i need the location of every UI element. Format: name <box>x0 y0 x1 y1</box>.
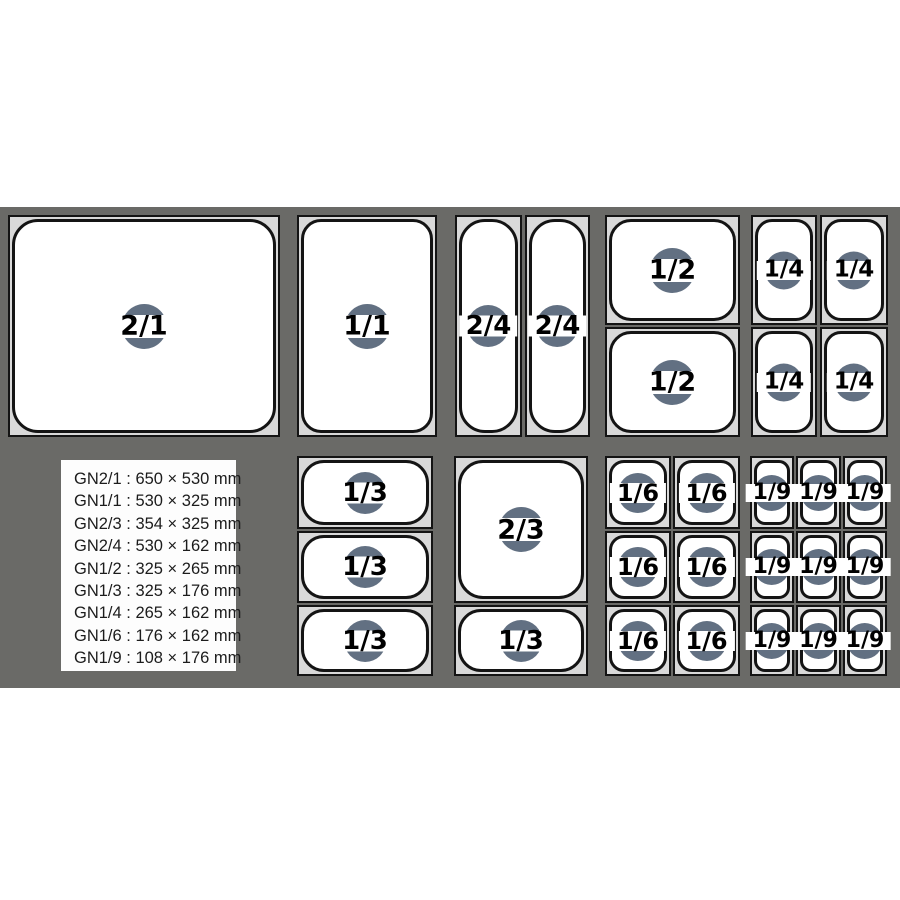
pan-gn21: 2/1 <box>12 219 276 433</box>
size-badge: 1/6 <box>685 481 727 505</box>
pan-cell-gn19-8: 1/9 <box>796 605 841 676</box>
size-badge: 2/1 <box>120 313 167 340</box>
pan-cell-gn19-9: 1/9 <box>843 605 887 676</box>
size-badge: 1/6 <box>617 481 659 505</box>
size-badge: 1/6 <box>685 629 727 653</box>
size-badge: 1/9 <box>799 556 838 578</box>
size-badge: 1/2 <box>649 369 696 396</box>
pan-size-label: 1/9 <box>753 482 792 504</box>
legend-item: GN2/3 : 354 × 325 mm <box>74 513 236 535</box>
pan-gn19-2: 1/9 <box>800 460 837 525</box>
legend-panel: GN2/1 : 650 × 530 mm GN1/1 : 530 × 325 m… <box>61 460 236 671</box>
size-badge: 1/4 <box>764 371 804 394</box>
pan-gn13-3: 1/3 <box>301 609 429 672</box>
pan-gn16-6: 1/6 <box>677 609 736 672</box>
pan-size-label: 1/9 <box>799 482 838 504</box>
pan-size-label: 2/1 <box>120 313 167 340</box>
pan-cell-gn16-4: 1/6 <box>673 531 740 603</box>
legend-item: GN1/6 : 176 × 162 mm <box>74 625 236 647</box>
pan-size-label: 1/3 <box>498 628 544 654</box>
pan-size-label: 1/4 <box>764 259 804 282</box>
pan-size-label: 2/3 <box>497 516 544 543</box>
legend-item: GN1/3 : 325 × 176 mm <box>74 580 236 602</box>
size-badge: 1/9 <box>753 556 792 578</box>
pan-cell-gn23-13: 1/3 <box>454 605 588 676</box>
pan-gn13-2: 1/3 <box>301 535 429 599</box>
pan-gn19-4: 1/9 <box>754 535 790 599</box>
pan-size-label: 1/9 <box>799 630 838 652</box>
pan-gn12-2: 1/2 <box>609 331 736 433</box>
size-badge: 1/2 <box>649 257 696 284</box>
legend-item: GN1/1 : 530 × 325 mm <box>74 490 236 512</box>
size-badge: 1/9 <box>846 630 885 652</box>
pan-gn24-2: 2/4 <box>529 219 586 433</box>
pan-gn19-3: 1/9 <box>847 460 883 525</box>
pan-size-label: 1/6 <box>685 629 727 653</box>
pan-size-label: 2/4 <box>466 313 512 339</box>
size-badge: 1/9 <box>799 482 838 504</box>
size-badge: 1/3 <box>498 628 544 654</box>
size-badge: 1/6 <box>617 629 659 653</box>
pan-gn16-2: 1/6 <box>677 460 736 525</box>
size-badge: 1/4 <box>834 259 874 282</box>
legend-item: GN1/2 : 325 × 265 mm <box>74 558 236 580</box>
pan-gn19-7: 1/9 <box>754 609 790 672</box>
legend-item: GN1/9 : 108 × 176 mm <box>74 647 236 669</box>
pan-cell-gn14-1: 1/4 <box>751 215 817 325</box>
size-badge: 1/9 <box>753 482 792 504</box>
pan-cell-gn11: 1/1 <box>297 215 437 437</box>
pan-gn11: 1/1 <box>301 219 433 433</box>
pan-cell-gn13-2: 1/3 <box>297 531 433 603</box>
pan-cell-gn24-2: 2/4 <box>525 215 590 437</box>
pan-cell-gn14-3: 1/4 <box>751 327 817 437</box>
size-badge: 2/4 <box>535 313 581 339</box>
pan-size-label: 1/6 <box>617 481 659 505</box>
pan-size-label: 1/2 <box>649 369 696 396</box>
pan-size-label: 1/3 <box>342 554 388 580</box>
size-badge: 1/9 <box>753 630 792 652</box>
pan-size-label: 1/4 <box>834 259 874 282</box>
pan-cell-gn23: 2/3 <box>454 456 588 603</box>
gn-size-diagram: 2/1 1/1 2/4 2/4 <box>0 0 900 900</box>
pan-cell-gn12-1: 1/2 <box>605 215 740 325</box>
pan-cell-gn14-4: 1/4 <box>820 327 888 437</box>
pan-cell-gn24-1: 2/4 <box>455 215 522 437</box>
size-badge: 1/6 <box>685 555 727 579</box>
size-badge: 2/3 <box>497 516 544 543</box>
pan-gn23: 2/3 <box>458 460 584 599</box>
pan-cell-gn19-2: 1/9 <box>796 456 841 529</box>
pan-gn14-2: 1/4 <box>824 219 884 321</box>
pan-cell-gn12-2: 1/2 <box>605 327 740 437</box>
pan-gn16-4: 1/6 <box>677 535 736 599</box>
pan-gn23-13: 1/3 <box>458 609 584 672</box>
pan-size-label: 1/9 <box>846 482 885 504</box>
pan-size-label: 1/9 <box>753 556 792 578</box>
pan-cell-gn19-3: 1/9 <box>843 456 887 529</box>
pan-cell-gn14-2: 1/4 <box>820 215 888 325</box>
pan-gn12-1: 1/2 <box>609 219 736 321</box>
pan-gn19-5: 1/9 <box>800 535 837 599</box>
size-badge: 1/3 <box>342 554 388 580</box>
pan-size-label: 1/9 <box>753 630 792 652</box>
size-badge: 1/9 <box>799 630 838 652</box>
size-badge: 1/9 <box>846 556 885 578</box>
pan-size-label: 1/9 <box>846 630 885 652</box>
pan-size-label: 1/6 <box>685 555 727 579</box>
pan-size-label: 1/3 <box>342 480 388 506</box>
pan-size-label: 1/6 <box>617 555 659 579</box>
pan-gn16-5: 1/6 <box>609 609 667 672</box>
pan-cell-gn16-1: 1/6 <box>605 456 671 529</box>
size-badge: 1/3 <box>342 480 388 506</box>
pan-size-label: 1/9 <box>799 556 838 578</box>
pan-cell-gn19-1: 1/9 <box>750 456 794 529</box>
pan-gn19-9: 1/9 <box>847 609 883 672</box>
pan-gn19-8: 1/9 <box>800 609 837 672</box>
pan-gn16-1: 1/6 <box>609 460 667 525</box>
pan-gn13-1: 1/3 <box>301 460 429 525</box>
pan-cell-gn21: 2/1 <box>8 215 280 437</box>
pan-cell-gn13-3: 1/3 <box>297 605 433 676</box>
pan-size-label: 1/1 <box>343 313 390 340</box>
pan-gn14-4: 1/4 <box>824 331 884 433</box>
pan-gn19-6: 1/9 <box>847 535 883 599</box>
size-badge: 1/1 <box>343 313 390 340</box>
pan-gn24-1: 2/4 <box>459 219 518 433</box>
legend-item: GN1/4 : 265 × 162 mm <box>74 602 236 624</box>
pan-cell-gn16-3: 1/6 <box>605 531 671 603</box>
pan-size-label: 2/4 <box>535 313 581 339</box>
pan-cell-gn19-5: 1/9 <box>796 531 841 603</box>
legend-item: GN2/1 : 650 × 530 mm <box>74 468 236 490</box>
pan-size-label: 1/3 <box>342 628 388 654</box>
legend-item: GN2/4 : 530 × 162 mm <box>74 535 236 557</box>
pan-cell-gn16-2: 1/6 <box>673 456 740 529</box>
pan-size-label: 1/4 <box>834 371 874 394</box>
size-badge: 1/4 <box>764 259 804 282</box>
size-badge: 1/3 <box>342 628 388 654</box>
pan-cell-gn19-4: 1/9 <box>750 531 794 603</box>
pan-size-label: 1/6 <box>617 629 659 653</box>
size-badge: 1/9 <box>846 482 885 504</box>
pan-gn14-1: 1/4 <box>755 219 813 321</box>
pan-gn16-3: 1/6 <box>609 535 667 599</box>
pan-gn19-1: 1/9 <box>754 460 790 525</box>
pan-cell-gn19-6: 1/9 <box>843 531 887 603</box>
size-badge: 1/4 <box>834 371 874 394</box>
pan-cell-gn19-7: 1/9 <box>750 605 794 676</box>
pan-size-label: 1/6 <box>685 481 727 505</box>
size-badge: 1/6 <box>617 555 659 579</box>
pan-size-label: 1/9 <box>846 556 885 578</box>
pan-cell-gn16-6: 1/6 <box>673 605 740 676</box>
pan-size-label: 1/4 <box>764 371 804 394</box>
pan-size-label: 1/2 <box>649 257 696 284</box>
pan-cell-gn13-1: 1/3 <box>297 456 433 529</box>
size-badge: 2/4 <box>466 313 512 339</box>
pan-gn14-3: 1/4 <box>755 331 813 433</box>
pan-cell-gn16-5: 1/6 <box>605 605 671 676</box>
